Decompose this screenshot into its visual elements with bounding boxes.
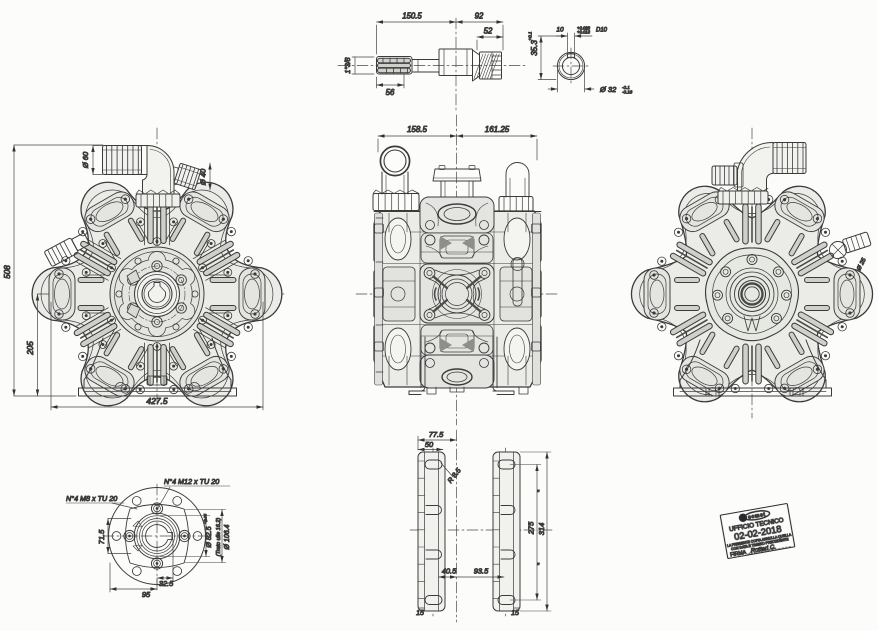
svg-text:1″3/8: 1″3/8 [345,57,352,73]
svg-text:161.25: 161.25 [485,125,510,134]
svg-text:N°4 M12 x TU 20: N°4 M12 x TU 20 [164,477,219,486]
svg-text:D10: D10 [596,28,608,34]
svg-text:32.5: 32.5 [159,579,174,588]
svg-text:150.5: 150.5 [402,12,422,21]
svg-text:Ø 40: Ø 40 [199,168,208,186]
svg-text:10: 10 [556,27,564,34]
svg-text:158.5: 158.5 [407,125,428,134]
svg-text:15: 15 [416,610,424,617]
svg-text:93.5: 93.5 [474,567,489,576]
svg-text:314: 314 [537,523,546,536]
svg-text:Ø 32: Ø 32 [599,85,617,94]
svg-text:205: 205 [26,341,35,356]
svg-text:-0.16: -0.16 [622,90,633,95]
svg-text:Ø 82.5: Ø 82.5 [206,526,213,548]
svg-text:52: 52 [484,27,493,36]
svg-text:35.3: 35.3 [530,40,539,56]
svg-text:+0.013: +0.013 [577,30,591,35]
svg-text:(Trato ulle 16.2): (Trato ulle 16.2) [216,518,222,557]
svg-text:40.5: 40.5 [442,567,457,576]
svg-text:71.5: 71.5 [97,529,106,544]
svg-text:N°4 M8 x TU 20: N°4 M8 x TU 20 [66,494,117,503]
svg-text:+0.1: +0.1 [528,31,533,40]
svg-text:427.5: 427.5 [146,396,168,406]
svg-text:50: 50 [425,440,434,449]
svg-text:56: 56 [386,88,395,97]
svg-text:Ø 106.4: Ø 106.4 [224,524,231,550]
svg-text:275: 275 [527,521,536,535]
svg-text:15: 15 [511,610,519,617]
svg-text:77.5: 77.5 [429,430,444,439]
svg-text:92: 92 [475,12,484,21]
svg-text:508: 508 [3,265,12,279]
svg-text:Ø 60: Ø 60 [81,151,90,169]
svg-text:+0.05: +0.05 [203,513,208,524]
svg-text:95: 95 [142,590,151,599]
